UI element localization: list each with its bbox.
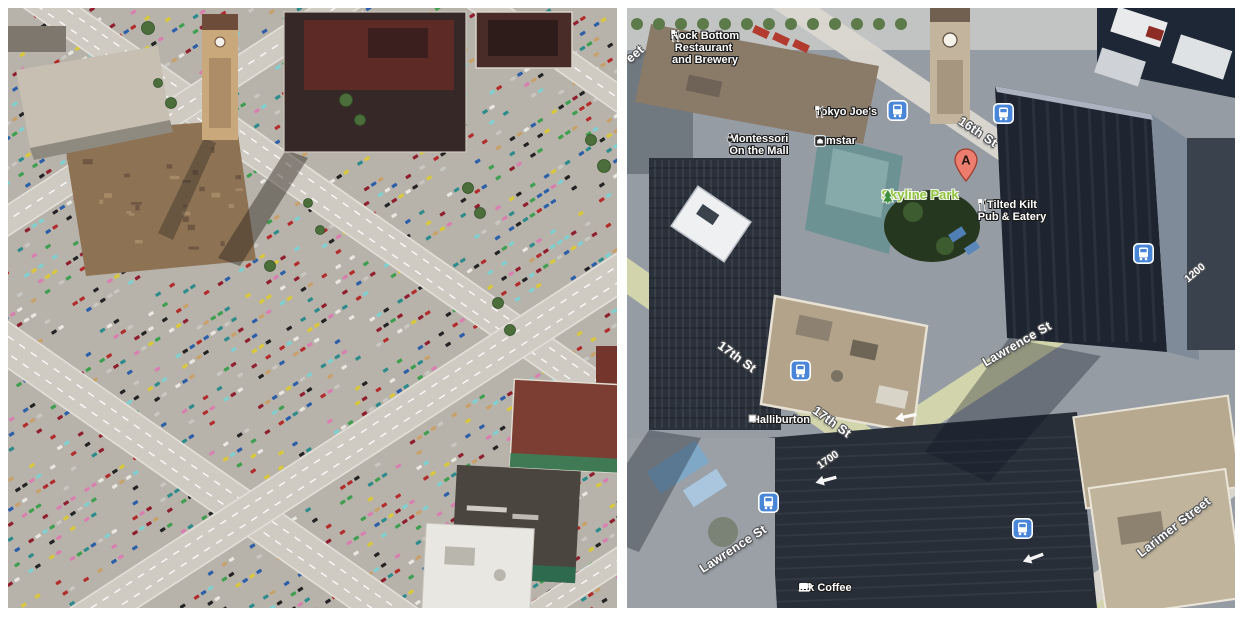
seventeenth-st-upper-text: 17th St — [716, 339, 758, 374]
tree — [493, 298, 504, 309]
montessori-on-the-mall[interactable]: MontessoriOn the Mall — [725, 133, 788, 157]
lawrence-st-lower: Lawrence St — [697, 523, 768, 575]
seventeenth-st-upper: 17th St — [716, 339, 758, 374]
tree — [142, 22, 155, 35]
block-number-1700-text: 1700 — [815, 448, 841, 471]
tree — [505, 325, 516, 336]
larimer-street: Larimer Street — [1135, 495, 1212, 559]
rock-bottom-restaurant-text: Rock Bottom — [671, 30, 739, 42]
imagery-watermark: 2013 2 120 — [673, 404, 731, 416]
ink-coffee[interactable]: Ink Coffee — [798, 582, 855, 594]
tree — [166, 98, 177, 109]
halliburton[interactable]: Halliburton — [748, 414, 810, 426]
tree — [598, 160, 611, 173]
tree — [355, 115, 366, 126]
tilted-kilt-pub-text: Pub & Eatery — [978, 211, 1046, 223]
historic-photo-canvas — [8, 8, 617, 608]
montessori-on-the-mall-text: On the Mall — [729, 145, 788, 157]
amstar[interactable]: Amstar — [814, 135, 856, 147]
tree — [265, 261, 276, 272]
montessori-on-the-mall-text: Montessori — [729, 133, 788, 145]
block-number-1700: 1700 — [815, 448, 841, 471]
map-overlay: Rock BottomRestaurantand BreweryeetTokyo… — [627, 8, 1235, 608]
rock-bottom-restaurant[interactable]: Rock BottomRestaurantand Brewery — [671, 30, 739, 66]
photo-comparison: Rock BottomRestaurantand BreweryeetTokyo… — [0, 0, 1240, 620]
block-number-1200-text: 1200 — [1182, 261, 1208, 285]
tree — [154, 79, 163, 88]
tilted-kilt-pub-text: Tilted Kilt — [978, 199, 1046, 211]
skyline-park[interactable]: Skyline Park — [881, 189, 958, 201]
street-name-fragment-text: eet — [627, 43, 646, 64]
lawrence-st-lower-text: Lawrence St — [697, 523, 768, 575]
tilted-kilt-pub[interactable]: Tilted KiltPub & Eatery — [978, 199, 1046, 223]
imagery-watermark-text: 2013 2 120 — [673, 404, 731, 416]
street-name-fragment: eet — [627, 43, 646, 64]
aerial-map-view[interactable]: Rock BottomRestaurantand BreweryeetTokyo… — [627, 8, 1235, 608]
tokyo-joes[interactable]: Tokyo Joe's — [815, 106, 877, 118]
historic-aerial-photo — [8, 8, 617, 608]
tree — [340, 94, 353, 107]
lawrence-st-upper-text: Lawrence St — [981, 320, 1054, 369]
rock-bottom-restaurant-text: Restaurant — [671, 42, 739, 54]
tree — [463, 183, 474, 194]
rock-bottom-restaurant-text: and Brewery — [671, 54, 739, 66]
lawrence-st-upper: Lawrence St — [981, 320, 1054, 369]
seventeenth-st-lower-text: 17th St — [811, 404, 853, 439]
larimer-street-text: Larimer Street — [1135, 495, 1212, 559]
block-number-1200: 1200 — [1182, 261, 1208, 285]
seventeenth-st-lower: 17th St — [811, 404, 853, 439]
tree — [475, 208, 486, 219]
tree — [586, 135, 597, 146]
tree — [316, 226, 325, 235]
tree — [304, 199, 313, 208]
halliburton-text: Halliburton — [752, 414, 810, 426]
